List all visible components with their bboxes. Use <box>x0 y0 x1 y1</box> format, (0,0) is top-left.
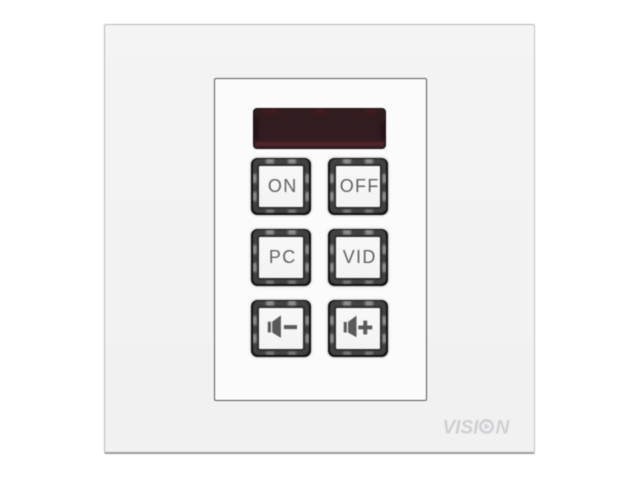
svg-text:N: N <box>496 418 511 439</box>
svg-text:VISI: VISI <box>443 418 480 439</box>
